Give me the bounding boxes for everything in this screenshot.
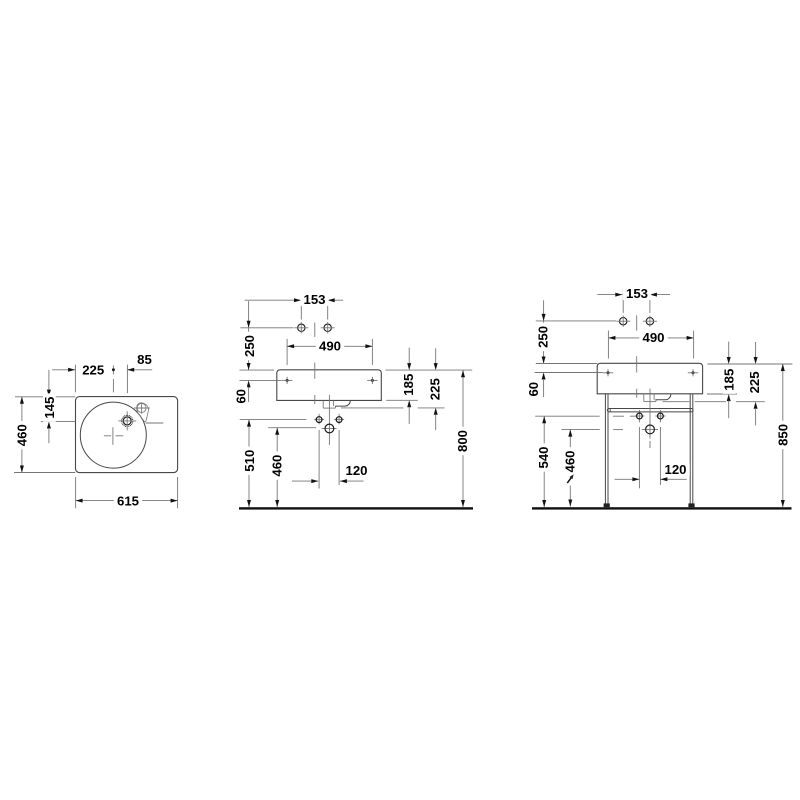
- svg-text:250: 250: [536, 326, 551, 348]
- svg-text:153: 153: [303, 292, 325, 307]
- svg-text:850: 850: [775, 424, 790, 446]
- svg-text:510: 510: [242, 450, 257, 472]
- svg-text:460: 460: [269, 455, 284, 477]
- svg-text:250: 250: [242, 335, 257, 357]
- svg-text:85: 85: [137, 352, 152, 367]
- svg-text:490: 490: [319, 339, 341, 354]
- svg-text:120: 120: [664, 462, 686, 477]
- svg-text:153: 153: [626, 286, 648, 301]
- svg-text:490: 490: [642, 330, 664, 345]
- svg-text:120: 120: [345, 463, 367, 478]
- svg-text:540: 540: [536, 446, 551, 468]
- svg-text:460: 460: [14, 424, 29, 446]
- svg-text:185: 185: [722, 369, 737, 391]
- svg-text:615: 615: [117, 493, 139, 508]
- svg-text:225: 225: [428, 378, 443, 400]
- svg-text:460: 460: [563, 450, 578, 472]
- svg-text:800: 800: [455, 430, 470, 452]
- svg-text:225: 225: [82, 362, 104, 377]
- svg-text:225: 225: [747, 371, 762, 393]
- svg-text:145: 145: [42, 397, 57, 419]
- svg-text:185: 185: [401, 374, 416, 396]
- svg-text:60: 60: [233, 389, 248, 404]
- svg-text:60: 60: [526, 382, 541, 397]
